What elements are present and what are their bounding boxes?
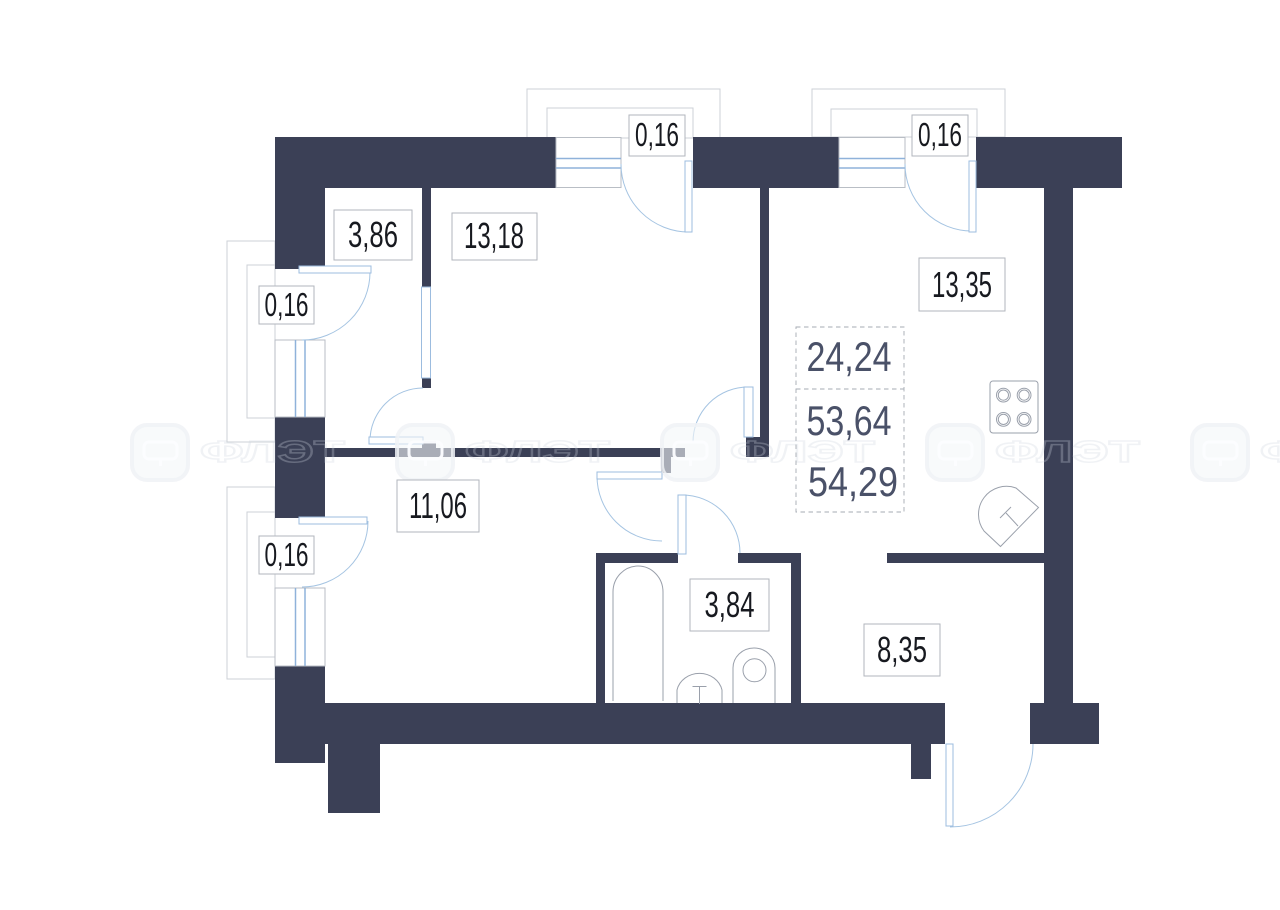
- svg-text:3,84: 3,84: [705, 584, 755, 625]
- svg-text:0,16: 0,16: [265, 286, 309, 323]
- svg-text:24,24: 24,24: [807, 333, 892, 380]
- svg-text:ФЛЭТ: ФЛЭТ: [200, 434, 345, 469]
- svg-text:11,06: 11,06: [409, 485, 467, 526]
- svg-text:0,16: 0,16: [918, 116, 962, 153]
- svg-text:0,16: 0,16: [265, 536, 309, 573]
- svg-text:13,35: 13,35: [932, 264, 992, 305]
- svg-text:3,86: 3,86: [348, 214, 398, 255]
- svg-text:53,64: 53,64: [807, 397, 892, 444]
- svg-text:54,29: 54,29: [808, 458, 898, 505]
- svg-text:0,16: 0,16: [635, 116, 679, 153]
- svg-text:13,18: 13,18: [464, 215, 524, 256]
- svg-text:8,35: 8,35: [877, 629, 927, 670]
